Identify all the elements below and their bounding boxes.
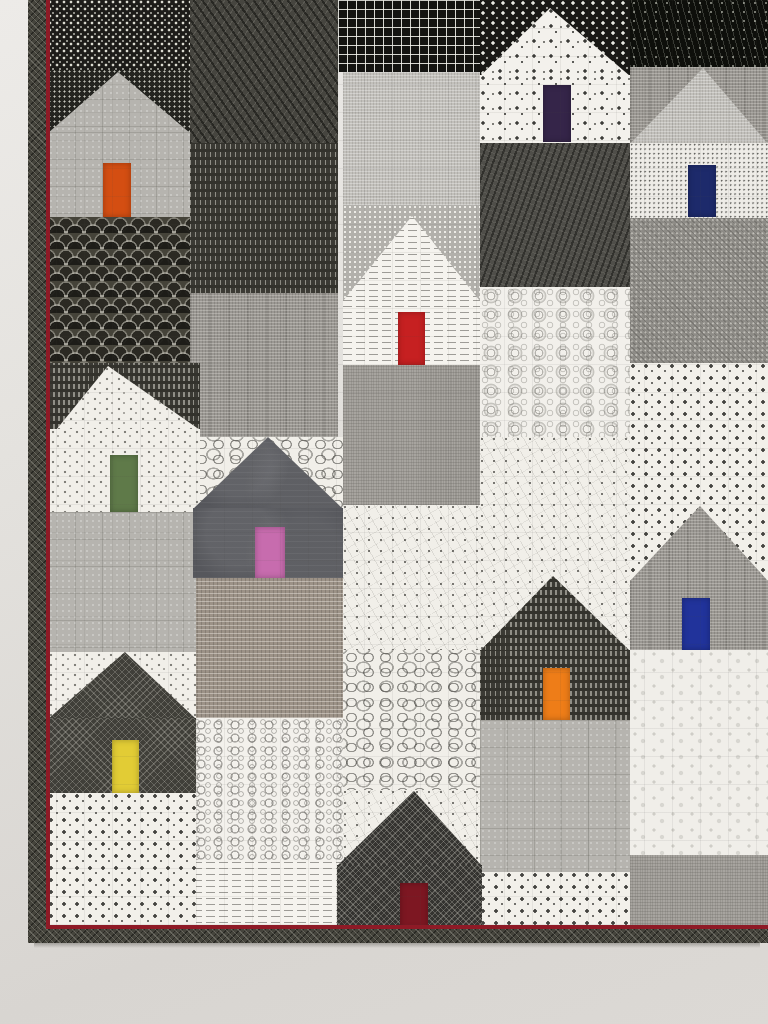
- fabric-patch-dk_x: [190, 0, 338, 143]
- fabric-patch-bk_grid: [338, 0, 480, 72]
- fabric-patch-w_floral: [630, 650, 768, 855]
- house-pink-door: [255, 527, 285, 578]
- house-navy-door: [688, 165, 716, 217]
- fabric-patch-gray_scr: [630, 855, 768, 930]
- fabric-patch-w_tri: [343, 505, 480, 650]
- fabric-patch-fan: [48, 217, 190, 363]
- fabric-patch-dk_slab: [480, 143, 630, 287]
- fabric-patch-gray_scr: [343, 365, 480, 505]
- house-red-door: [398, 312, 425, 365]
- fabric-patch-lt_grid: [48, 512, 196, 652]
- binding-left: [28, 0, 46, 943]
- house-green-door: [110, 455, 138, 512]
- house-orange-door: [103, 163, 131, 217]
- fabric-patch-w_sqout: [343, 650, 480, 793]
- fabric-patch-gray_dg: [630, 218, 768, 363]
- accent-line-left: [46, 0, 50, 929]
- fabric-patch-bk_sq: [48, 0, 190, 70]
- fabric-patch-dk_dash: [190, 143, 338, 293]
- house-eggplant-door: [543, 85, 571, 142]
- fabric-patch-w_sqdots: [480, 872, 630, 930]
- quilt-drop-shadow: [34, 943, 760, 948]
- house-yellow-door: [112, 740, 139, 793]
- house-maroon-door: [400, 883, 428, 929]
- house-orange2-door: [543, 668, 570, 720]
- fabric-patch-lt_grid: [480, 720, 630, 872]
- house-royal-door: [682, 598, 710, 650]
- fabric-patch-w_ovals: [193, 718, 343, 862]
- fabric-patch-w_sqdots: [48, 793, 196, 933]
- fabric-patch-lt_linen: [343, 72, 480, 205]
- quilt-photo: [0, 0, 768, 1024]
- binding-bottom: [28, 929, 768, 943]
- fabric-patch-taupe: [193, 578, 343, 718]
- fabric-patch-w_text: [193, 862, 343, 933]
- accent-line-bottom: [46, 925, 768, 929]
- fabric-patch-md_linen: [190, 293, 338, 437]
- fabric-patch-bk_speck: [630, 0, 768, 67]
- fabric-patch-w_swirl: [480, 287, 630, 437]
